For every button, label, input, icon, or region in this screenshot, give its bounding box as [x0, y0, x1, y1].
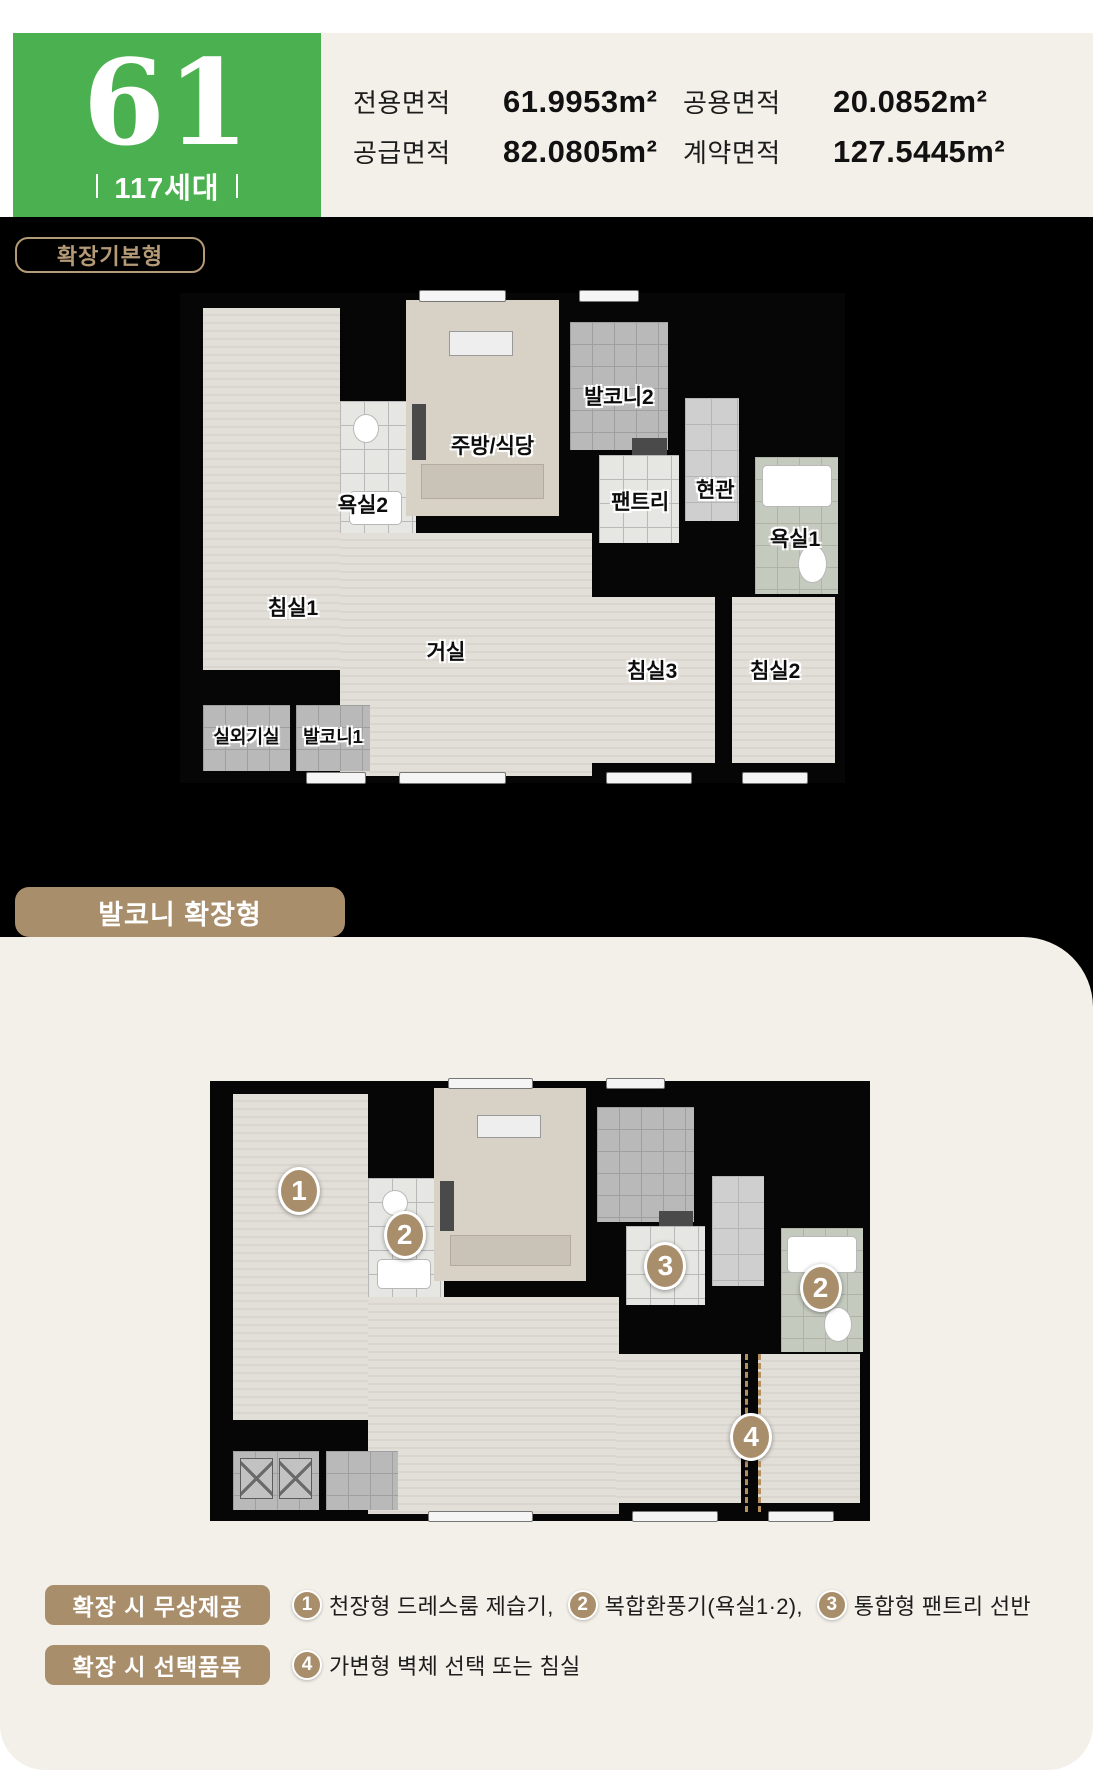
- household-count: 117세대: [114, 165, 219, 207]
- room-living: [368, 1297, 619, 1515]
- room-bedroom2: [758, 1354, 860, 1504]
- legend-item-text: 천장형 드레스룸 제습기,: [329, 1589, 554, 1621]
- window: [632, 1511, 718, 1522]
- legend-badge-free: 확장 시 무상제공: [45, 1585, 270, 1625]
- marker-4-movable-wall: 4: [730, 1413, 772, 1461]
- window: [606, 1078, 665, 1089]
- area-label: 공용면적: [683, 83, 811, 120]
- label-bedroom1: 침실1: [268, 592, 318, 622]
- marker-1-dehumidifier: 1: [278, 1167, 320, 1215]
- window: [306, 772, 366, 784]
- legend-item: 4 가변형 벽체 선택 또는 침실: [292, 1649, 581, 1681]
- marker-2-ventilator-bath2: 2: [384, 1211, 426, 1259]
- legend-marker-1: 1: [292, 1590, 322, 1620]
- label-bedroom3: 침실3: [627, 655, 677, 685]
- room-bedroom1: [233, 1094, 368, 1420]
- label-balcony1: 발코니1: [303, 723, 363, 749]
- outdoor-unit-icon: [279, 1458, 312, 1500]
- legend-option-row: 확장 시 선택품목 4 가변형 벽체 선택 또는 침실: [45, 1645, 581, 1685]
- area-supply: 공급면적 82.0805m²: [353, 133, 683, 167]
- area-label: 계약면적: [683, 133, 811, 170]
- legend-item: 3 통합형 팬트리 선반: [817, 1589, 1031, 1621]
- kitchen-island-icon: [450, 1235, 571, 1266]
- extended-plan-badge: 발코니 확장형: [15, 887, 345, 937]
- legend-item: 1 천장형 드레스룸 제습기,: [292, 1589, 554, 1621]
- kitchen-island-icon: [421, 464, 543, 498]
- window: [448, 1078, 534, 1089]
- floorplan-extended: 1 2 3 2 4: [210, 1081, 870, 1521]
- legend-marker-4: 4: [292, 1650, 322, 1680]
- window: [428, 1511, 534, 1522]
- kitchen-sink-icon: [449, 331, 513, 357]
- room-kitchen: [434, 1088, 586, 1282]
- room-bedroom3: [616, 1354, 741, 1504]
- kitchen-sink-icon: [477, 1115, 541, 1138]
- area-label: 전용면적: [353, 83, 481, 120]
- fridge-icon: [440, 1181, 454, 1231]
- legend-option-items: 4 가변형 벽체 선택 또는 침실: [292, 1649, 581, 1681]
- outdoor-unit-icon: [240, 1458, 273, 1500]
- window: [399, 772, 505, 784]
- area-common: 공용면적 20.0852m²: [683, 83, 1093, 117]
- bathtub-icon: [762, 465, 832, 506]
- legend-badge-option: 확장 시 선택품목: [45, 1645, 270, 1685]
- label-outdoor-unit: 실외기실: [213, 723, 279, 749]
- room-dressroom: [597, 1107, 695, 1221]
- bathtub-icon: [377, 1259, 430, 1290]
- left-bar-divider: [96, 174, 98, 198]
- window: [419, 290, 505, 302]
- legend-item-text: 통합형 팬트리 선반: [854, 1589, 1031, 1621]
- area-value: 127.5445m²: [833, 134, 1005, 170]
- label-bedroom2: 침실2: [750, 655, 800, 685]
- window: [579, 290, 639, 302]
- fridge-icon: [412, 404, 426, 460]
- right-bar-divider: [236, 174, 238, 198]
- label-entry: 현관: [696, 474, 735, 504]
- window: [742, 772, 809, 784]
- area-value: 61.9953m²: [503, 84, 657, 120]
- label-living: 거실: [427, 636, 466, 666]
- floorplan-basic: 침실1 욕실2 주방/식당 발코니2 팬트리 현관 욕실1 거실 침실3 침실2…: [180, 293, 845, 783]
- sink-icon: [353, 414, 379, 443]
- area-label: 공급면적: [353, 133, 481, 170]
- room-living: [340, 533, 593, 776]
- toilet-icon: [824, 1307, 852, 1341]
- label-pantry: 팬트리: [611, 486, 669, 516]
- label-bathroom2: 욕실2: [338, 489, 388, 519]
- area-info-panel: 전용면적 61.9953m² 공용면적 20.0852m² 공급면적 82.08…: [321, 33, 1093, 217]
- area-value: 82.0805m²: [503, 134, 657, 170]
- room-kitchen: [406, 300, 559, 516]
- room-balcony1: [326, 1451, 399, 1510]
- room-outdoor-unit: [233, 1451, 319, 1510]
- label-bathroom1: 욕실1: [770, 523, 820, 553]
- legend-item-text: 복합환풍기(욕실1·2),: [605, 1589, 803, 1621]
- legend-marker-2: 2: [568, 1590, 598, 1620]
- room-entry: [712, 1176, 765, 1286]
- legend-item: 2 복합환풍기(욕실1·2),: [568, 1589, 803, 1621]
- floorplan-brochure-page: 61 117세대 전용면적 61.9953m² 공용면적 20.0852m² 공…: [0, 0, 1093, 1770]
- household-count-row: 117세대: [96, 165, 237, 207]
- window: [768, 1511, 834, 1522]
- marker-3-pantry-shelf: 3: [644, 1242, 686, 1290]
- area-exclusive: 전용면적 61.9953m²: [353, 83, 683, 117]
- legend-marker-3: 3: [817, 1590, 847, 1620]
- legend-free-provision-row: 확장 시 무상제공 1 천장형 드레스룸 제습기, 2 복합환풍기(욕실1·2)…: [45, 1585, 1031, 1625]
- basic-plan-badge: 확장기본형: [15, 237, 205, 273]
- marker-2-ventilator-bath1: 2: [800, 1264, 842, 1312]
- label-balcony2: 발코니2: [584, 381, 654, 411]
- window: [606, 772, 692, 784]
- label-kitchen: 주방/식당: [451, 430, 534, 460]
- area-value: 20.0852m²: [833, 84, 987, 120]
- area-contract: 계약면적 127.5445m²: [683, 133, 1093, 167]
- unit-number: 61: [83, 43, 251, 163]
- unit-number-box: 61 117세대: [13, 33, 321, 217]
- legend-item-text: 가변형 벽체 선택 또는 침실: [329, 1649, 581, 1681]
- legend-free-items: 1 천장형 드레스룸 제습기, 2 복합환풍기(욕실1·2), 3 통합형 팬트…: [292, 1589, 1031, 1621]
